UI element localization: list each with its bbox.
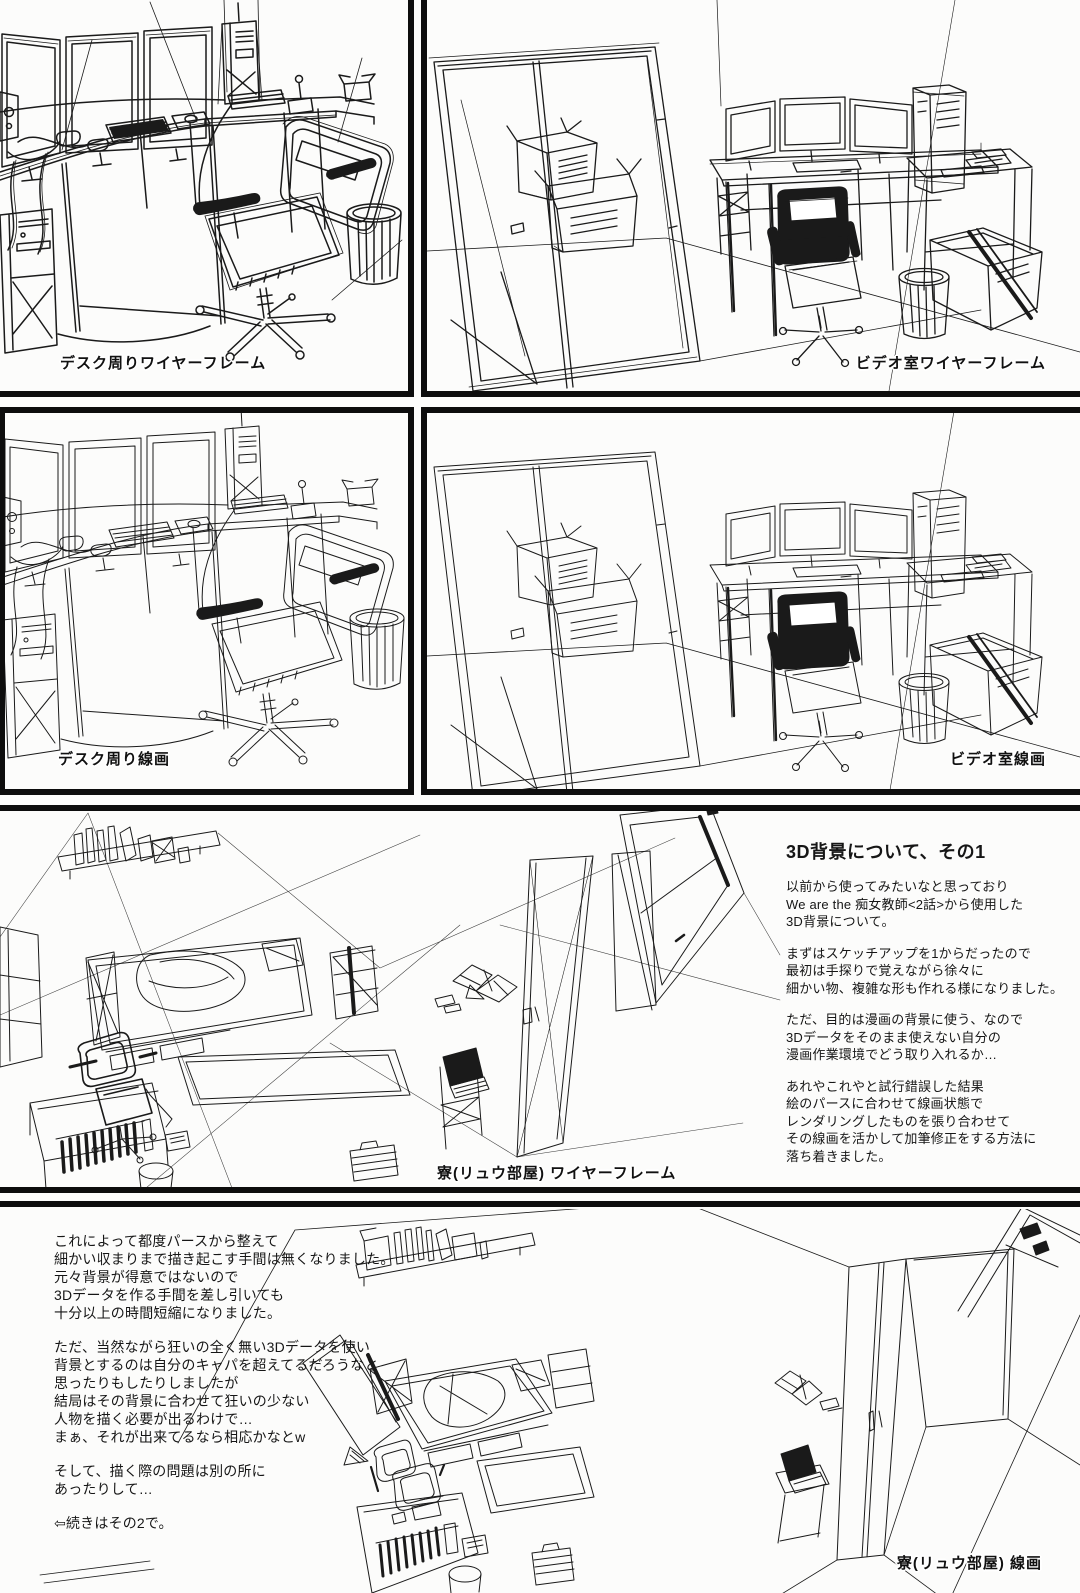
article-title: 3D背景について、その1 xyxy=(786,838,1078,864)
article-paragraph: そして、描く際の問題は別の所に あったりして… xyxy=(54,1462,404,1498)
article-paragraph: 以前から使ってみたいなと思っており We are the 痴女教師<2話>から使… xyxy=(786,878,1078,931)
caption-room-lineart: 寮(リュウ部屋) 線画 xyxy=(897,1552,1042,1573)
panel-border xyxy=(0,391,414,397)
article-paragraph: ⇦続きはその2で。 xyxy=(54,1514,404,1532)
panel-border xyxy=(0,789,414,795)
article-3d-backgrounds-part1-continued: これによって都度パースから整えて 細かい収まりまで描き起こす手間は無くなりました… xyxy=(54,1216,404,1532)
panel-border xyxy=(421,391,1080,397)
doujinshi-page: デスク周りワイヤーフレーム ビデオ室ワイヤーフレーム デスク周り線画 ビデオ室線… xyxy=(0,0,1080,1593)
article-paragraph: ただ、当然ながら狂いの全く無い3Dデータを使い 背景とするのは自分のキャパを超え… xyxy=(54,1338,404,1446)
caption-video-lineart: ビデオ室線画 xyxy=(950,748,1046,769)
caption-room-wireframe: 寮(リュウ部屋) ワイヤーフレーム xyxy=(437,1162,676,1183)
video-room-lineart-drawing xyxy=(427,413,1080,789)
desk-wireframe-drawing xyxy=(0,0,406,391)
article-paragraph: あれやこれやと試行錯誤した結果 絵のパースに合わせて線画状態で レンダリングした… xyxy=(786,1078,1078,1166)
article-3d-backgrounds-part1: 3D背景について、その1 以前から使ってみたいなと思っており We are th… xyxy=(786,838,1078,1165)
article-paragraph: ただ、目的は漫画の背景に使う、なので 3Dデータをそのまま使えない自分の 漫画作… xyxy=(786,1011,1078,1064)
caption-desk-lineart: デスク周り線画 xyxy=(58,748,170,769)
panel-border xyxy=(0,1187,1080,1193)
video-room-wireframe-drawing xyxy=(427,0,1080,391)
article-paragraph: これによって都度パースから整えて 細かい収まりまで描き起こす手間は無くなりました… xyxy=(54,1232,404,1322)
caption-desk-wireframe: デスク周りワイヤーフレーム xyxy=(60,352,266,373)
panel-border xyxy=(408,0,414,397)
panel-border xyxy=(0,1201,1080,1207)
panel-border xyxy=(421,789,1080,795)
desk-lineart-drawing xyxy=(5,413,408,789)
article-paragraph: まずはスケッチアップを1からだったので 最初は手探りで覚えながら徐々に 細かい物… xyxy=(786,945,1078,998)
caption-video-wireframe: ビデオ室ワイヤーフレーム xyxy=(856,352,1046,373)
panel-border xyxy=(408,407,414,795)
